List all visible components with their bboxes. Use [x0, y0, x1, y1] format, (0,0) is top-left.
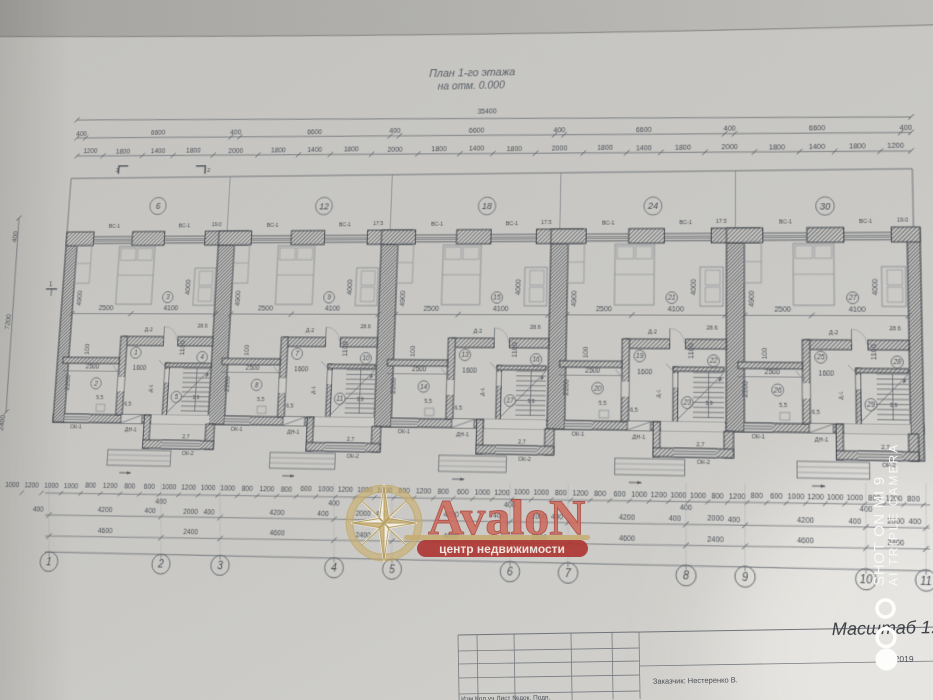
- svg-text:Заказчик: Нестеренко В.: Заказчик: Нестеренко В.: [653, 675, 738, 685]
- svg-text:AI TRIPLE CAMERA: AI TRIPLE CAMERA: [887, 443, 901, 586]
- svg-text:SHOT ON MI 9: SHOT ON MI 9: [871, 476, 888, 586]
- svg-text:Изм Кол.уч Лист №док. П: Изм Кол.уч Лист №док. Подп.: [461, 694, 551, 700]
- svg-text:центр недвижимости: центр недвижимости: [439, 542, 565, 556]
- svg-text:AvaloN: AvaloN: [428, 489, 585, 545]
